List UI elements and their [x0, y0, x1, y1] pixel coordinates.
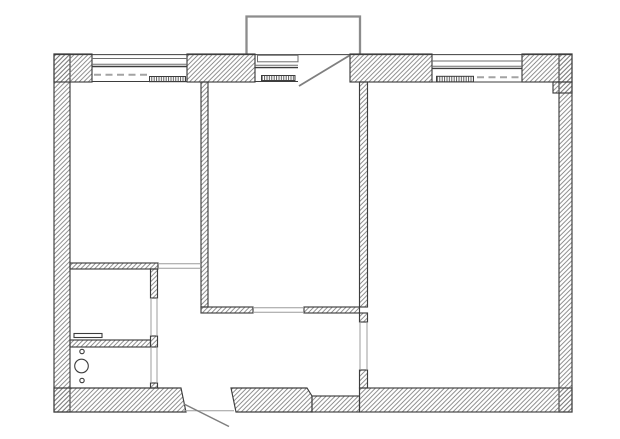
bathroom-north-wall [70, 263, 158, 269]
center-room-south-wall-right [304, 307, 360, 313]
radiator [437, 76, 474, 82]
bottom-wall-middle [231, 388, 312, 412]
partition-left-center [201, 82, 208, 307]
bathroom-east-wall-upper [151, 269, 158, 298]
top-wall-mid-left [187, 54, 255, 82]
bottom-wall-hall-niche [312, 396, 360, 412]
burner-circle-small-bottom [80, 378, 84, 382]
floor-plan-drawing [0, 0, 620, 439]
outer-wall-left [54, 54, 70, 412]
hall-east-wall-upper-jamb [360, 313, 368, 322]
top-wall-corner-left [54, 54, 92, 82]
radiator [150, 77, 186, 82]
partition-center-right [360, 82, 368, 307]
top-wall-mid-right [350, 54, 432, 82]
bathroom-east-wall-mid [151, 336, 158, 347]
center-room-south-wall-left [201, 307, 253, 313]
smallroom-east-wall-end [151, 383, 158, 388]
top-wall-corner-right [522, 54, 572, 82]
hall-east-wall-lower-jamb [360, 370, 368, 388]
floor-plan-canvas [0, 0, 620, 439]
outer-wall-right [559, 54, 572, 412]
bathroom-shelf [74, 334, 102, 338]
radiator [262, 76, 296, 81]
corner-pier-top-right [553, 82, 572, 93]
window-sill-box [258, 55, 299, 62]
bathroom-smallroom-divider [70, 340, 151, 347]
burner-circle-small-top [80, 349, 84, 353]
burner-circle-large [75, 359, 89, 373]
bottom-wall-left [54, 388, 186, 412]
bottom-wall-right [360, 388, 573, 412]
